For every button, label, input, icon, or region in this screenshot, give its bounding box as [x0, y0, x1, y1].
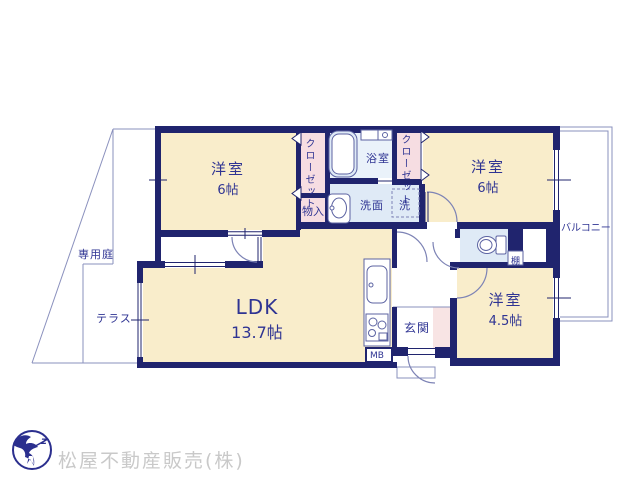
bathroom-label: 浴室: [366, 150, 390, 166]
washbasin-icon: [328, 194, 350, 223]
kitchen-icon: [364, 259, 390, 346]
bedroom-small-label: 洋室 4.5帖: [458, 289, 553, 329]
bedroom-small-name: 洋室: [458, 289, 553, 310]
toilet-icon: [478, 236, 507, 254]
bedroom-right-name: 洋室: [423, 156, 553, 177]
floor-plan: 洋室 6帖 洋室 6帖 洋室 4.5帖 LDK 13.7帖 浴室 洗面 洗 物入…: [0, 0, 640, 480]
meter-box-label: MB: [370, 351, 384, 361]
bedroom-left-label: 洋室 6帖: [163, 158, 293, 198]
balcony-label: バルコニー: [561, 219, 611, 234]
closet-right-label: クローゼット: [398, 134, 410, 174]
bedroom-left-size: 6帖: [163, 179, 293, 198]
ldk-size: 13.7帖: [197, 319, 317, 343]
bedroom-small-size: 4.5帖: [458, 310, 553, 329]
private-garden-label: 専用庭: [78, 246, 114, 262]
washroom-label: 洗面: [360, 197, 384, 213]
bedroom-right-size: 6帖: [423, 177, 553, 196]
logo-mark: z: [41, 436, 47, 447]
floor-plan-drawing: [0, 0, 640, 480]
ldk-label: LDK 13.7帖: [197, 295, 317, 343]
entrance-label: 玄関: [404, 319, 430, 336]
bath-counter-icon: [361, 130, 392, 140]
porch-step: [397, 367, 435, 378]
closet-left-label: クローゼット: [302, 138, 314, 178]
bedroom-right-label: 洋室 6帖: [423, 156, 553, 196]
bathtub-icon: [329, 131, 357, 177]
terrace-label: テラス: [96, 310, 132, 326]
bedroom-left-name: 洋室: [163, 158, 293, 179]
ldk-name: LDK: [197, 295, 317, 319]
shelf-label: 棚: [511, 254, 520, 267]
company-name: 松屋不動産販売(株): [58, 446, 245, 473]
